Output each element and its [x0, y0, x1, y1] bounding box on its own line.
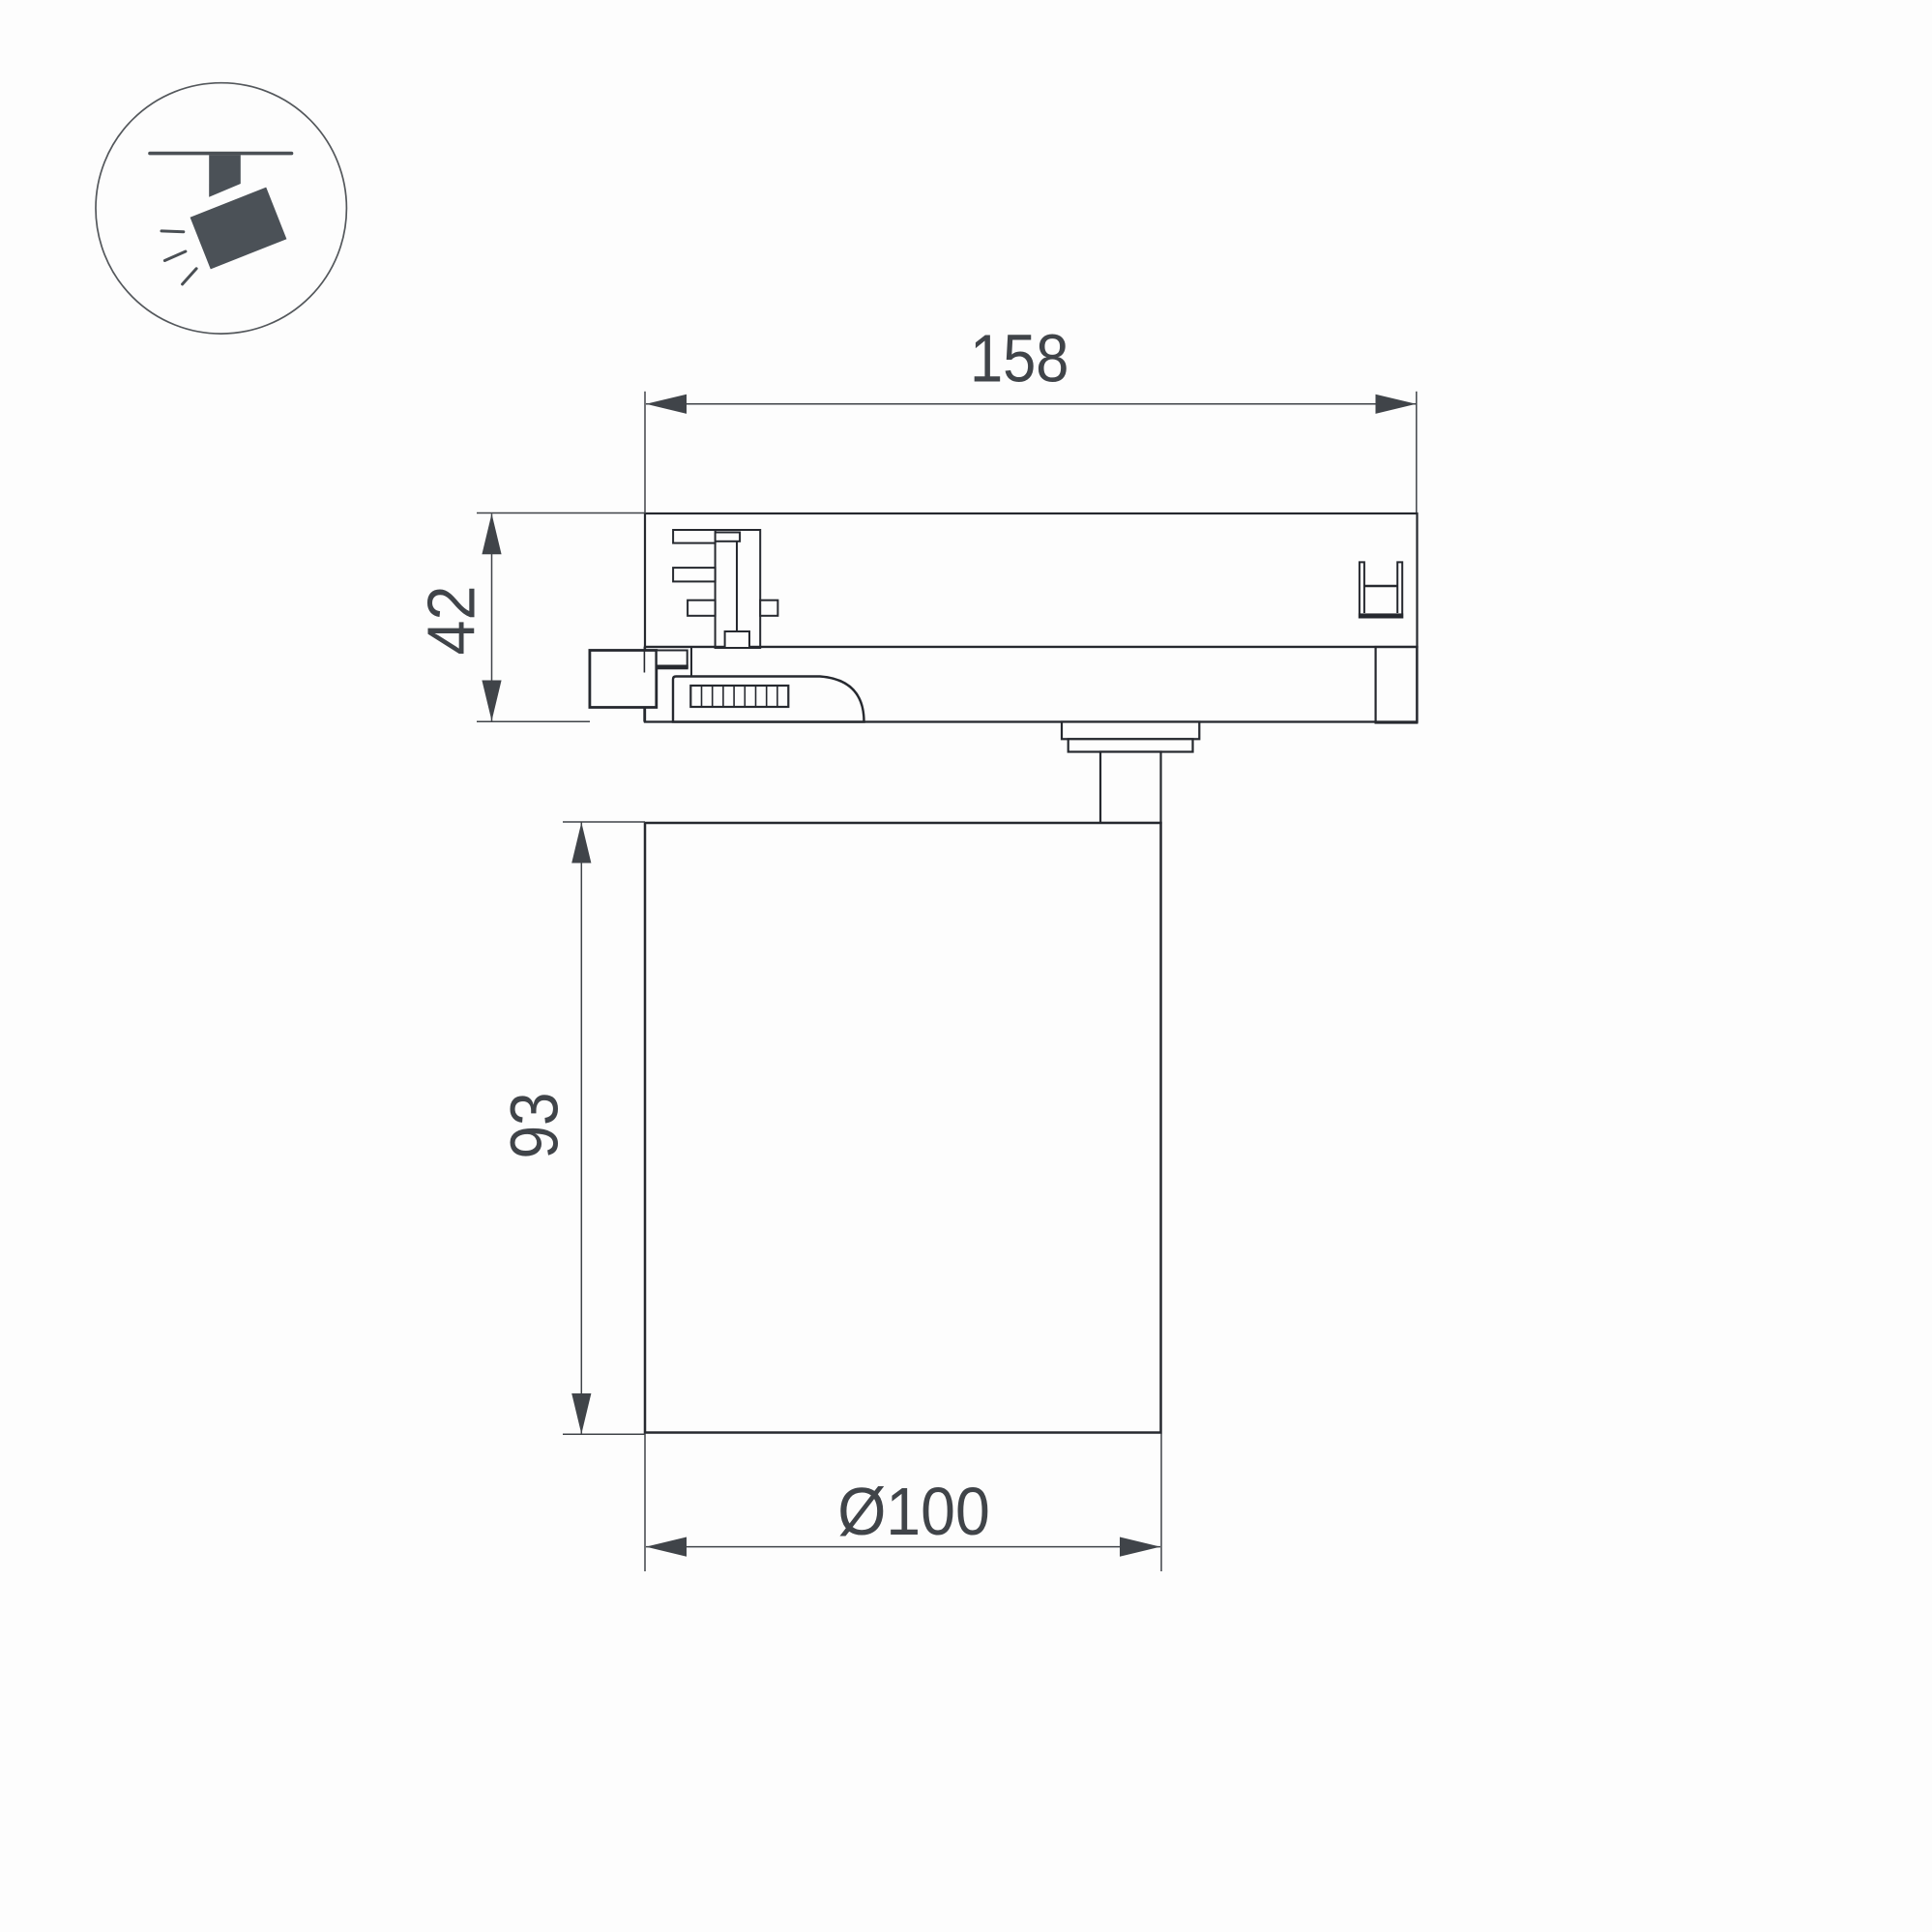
svg-text:158: 158 [970, 321, 1069, 396]
svg-text:42: 42 [413, 586, 488, 656]
svg-text:Ø100: Ø100 [837, 1474, 990, 1549]
svg-text:93: 93 [497, 1093, 572, 1159]
